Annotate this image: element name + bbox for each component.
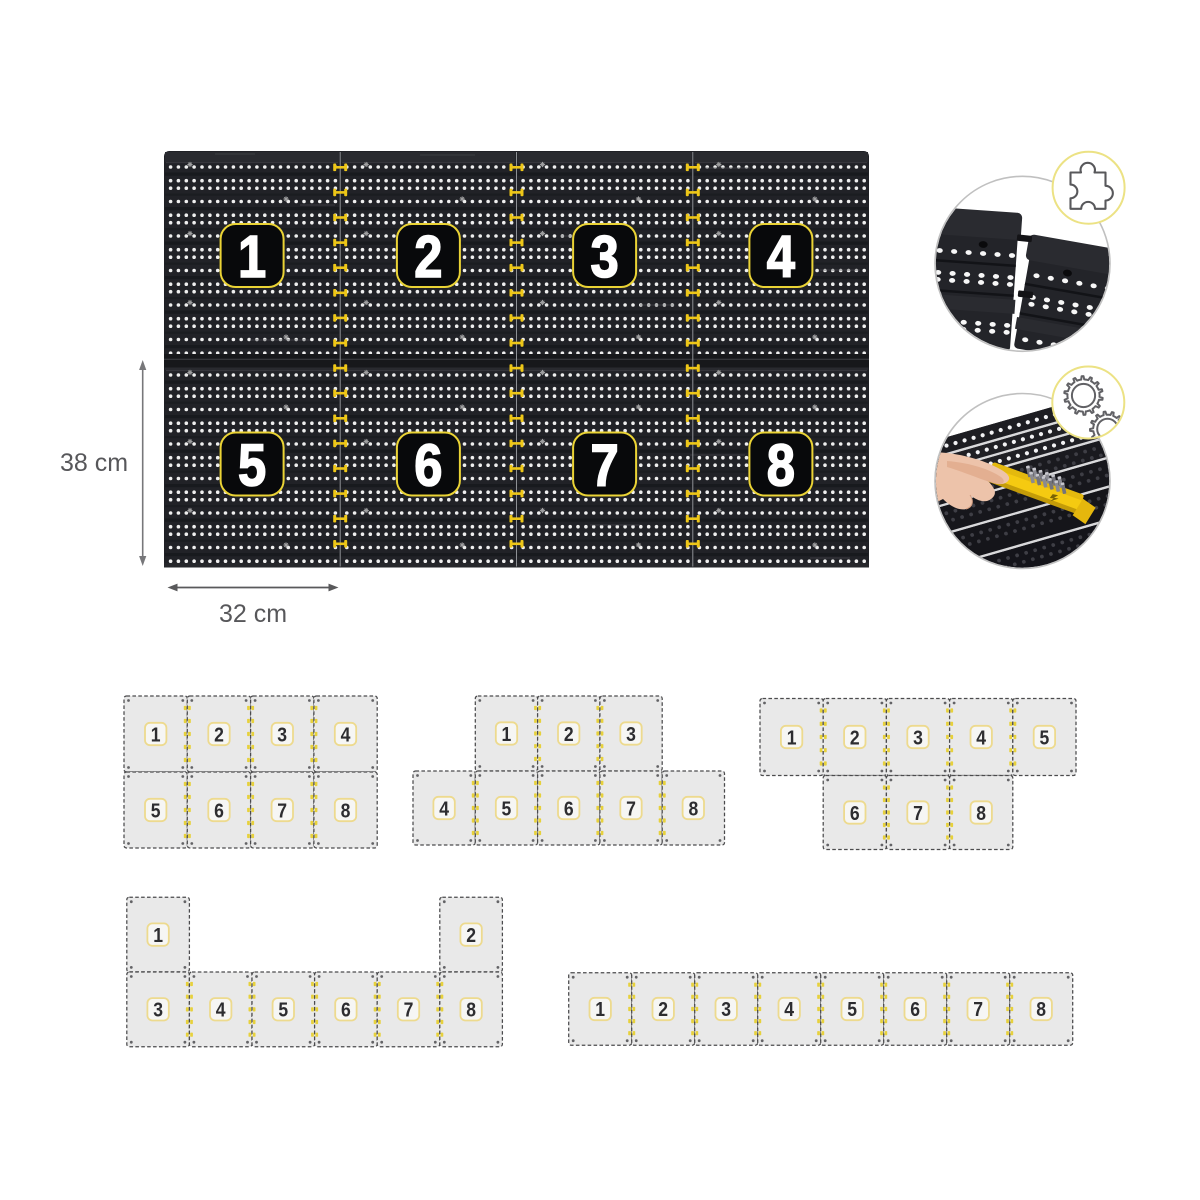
svg-text:4: 4 — [216, 999, 226, 1021]
svg-text:38 cm: 38 cm — [60, 449, 128, 477]
svg-text:8: 8 — [689, 797, 699, 819]
svg-text:3: 3 — [153, 999, 163, 1021]
svg-text:4: 4 — [767, 223, 796, 289]
svg-text:6: 6 — [564, 797, 574, 819]
svg-text:5: 5 — [1040, 726, 1050, 748]
svg-text:2: 2 — [658, 998, 668, 1020]
svg-text:1: 1 — [595, 998, 605, 1020]
svg-text:7: 7 — [590, 432, 618, 498]
svg-text:3: 3 — [721, 998, 731, 1020]
svg-text:4: 4 — [784, 998, 794, 1020]
svg-text:2: 2 — [564, 723, 574, 745]
svg-text:2: 2 — [414, 223, 442, 289]
svg-text:6: 6 — [850, 802, 860, 824]
svg-text:6: 6 — [214, 799, 224, 821]
svg-text:7: 7 — [973, 998, 983, 1020]
svg-text:6: 6 — [341, 999, 351, 1021]
svg-text:1: 1 — [787, 726, 797, 748]
svg-text:3: 3 — [590, 223, 618, 289]
svg-text:1: 1 — [153, 924, 163, 946]
svg-text:4: 4 — [976, 726, 986, 748]
svg-text:6: 6 — [910, 998, 920, 1020]
svg-text:32 cm: 32 cm — [219, 600, 287, 628]
svg-text:5: 5 — [151, 799, 161, 821]
svg-text:3: 3 — [277, 723, 287, 745]
svg-text:5: 5 — [502, 797, 512, 819]
svg-text:1: 1 — [151, 723, 161, 745]
svg-text:7: 7 — [277, 799, 287, 821]
svg-text:7: 7 — [913, 802, 923, 824]
svg-text:7: 7 — [626, 797, 636, 819]
svg-text:6: 6 — [414, 432, 442, 498]
svg-text:8: 8 — [341, 799, 351, 821]
svg-text:8: 8 — [1036, 998, 1046, 1020]
svg-text:4: 4 — [439, 797, 449, 819]
svg-text:5: 5 — [847, 998, 857, 1020]
svg-text:3: 3 — [913, 726, 923, 748]
svg-text:5: 5 — [278, 999, 288, 1021]
svg-text:5: 5 — [238, 432, 266, 498]
svg-text:1: 1 — [502, 723, 512, 745]
svg-text:2: 2 — [850, 726, 860, 748]
svg-text:1: 1 — [238, 223, 266, 289]
svg-text:3: 3 — [626, 723, 636, 745]
svg-text:4: 4 — [341, 723, 351, 745]
svg-text:8: 8 — [767, 432, 795, 498]
svg-text:2: 2 — [214, 723, 224, 745]
svg-text:2: 2 — [466, 924, 476, 946]
svg-text:8: 8 — [466, 999, 476, 1021]
svg-text:8: 8 — [976, 802, 986, 824]
svg-text:7: 7 — [404, 999, 414, 1021]
